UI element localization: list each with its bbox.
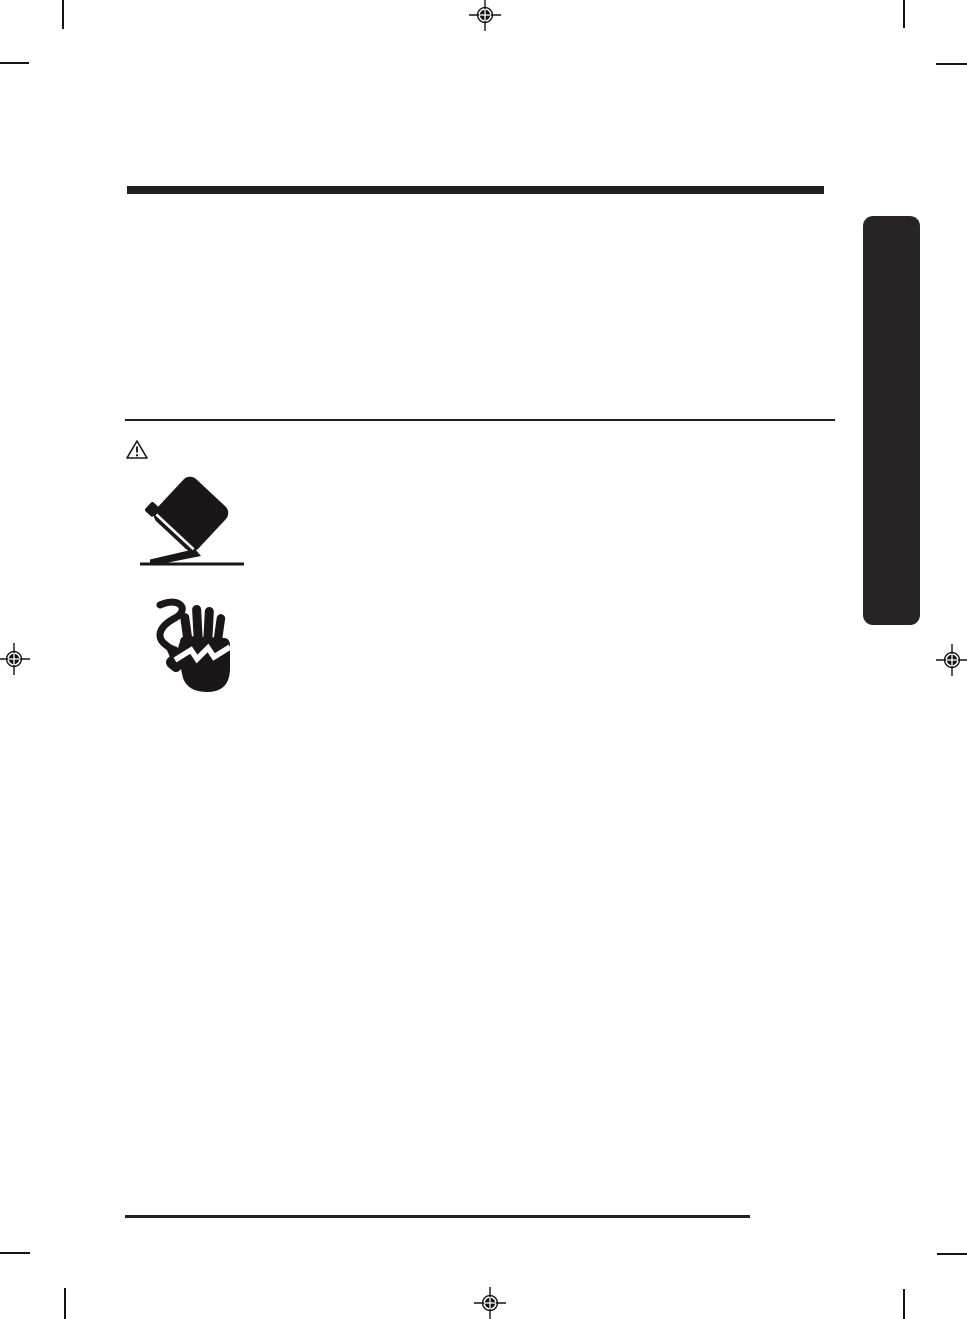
warning-triangle-icon (125, 439, 149, 460)
registration-mark-bottom-center (474, 1287, 506, 1319)
crop-mark-top-left-horizontal (0, 62, 29, 64)
crop-mark-top-left-vertical (62, 0, 64, 29)
chapter-header-bar (127, 186, 824, 194)
registration-mark-left-middle (0, 643, 30, 675)
crop-mark-bottom-left-vertical (64, 1288, 66, 1319)
footer-rule (125, 1215, 750, 1218)
crop-mark-top-right-vertical (903, 0, 905, 28)
registration-mark-right-middle (936, 644, 967, 676)
crop-mark-bottom-right-vertical (903, 1289, 905, 1319)
chapter-side-tab (863, 216, 920, 625)
crop-mark-bottom-right-horizontal (937, 1253, 967, 1255)
appliance-tip-over-icon (137, 469, 247, 568)
crop-mark-bottom-left-horizontal (0, 1252, 30, 1254)
section-divider-rule (125, 419, 835, 421)
electric-shock-hand-icon (150, 598, 242, 695)
manual-page (0, 0, 967, 1319)
registration-mark-top-center (469, 0, 501, 31)
crop-mark-top-right-horizontal (936, 63, 967, 65)
